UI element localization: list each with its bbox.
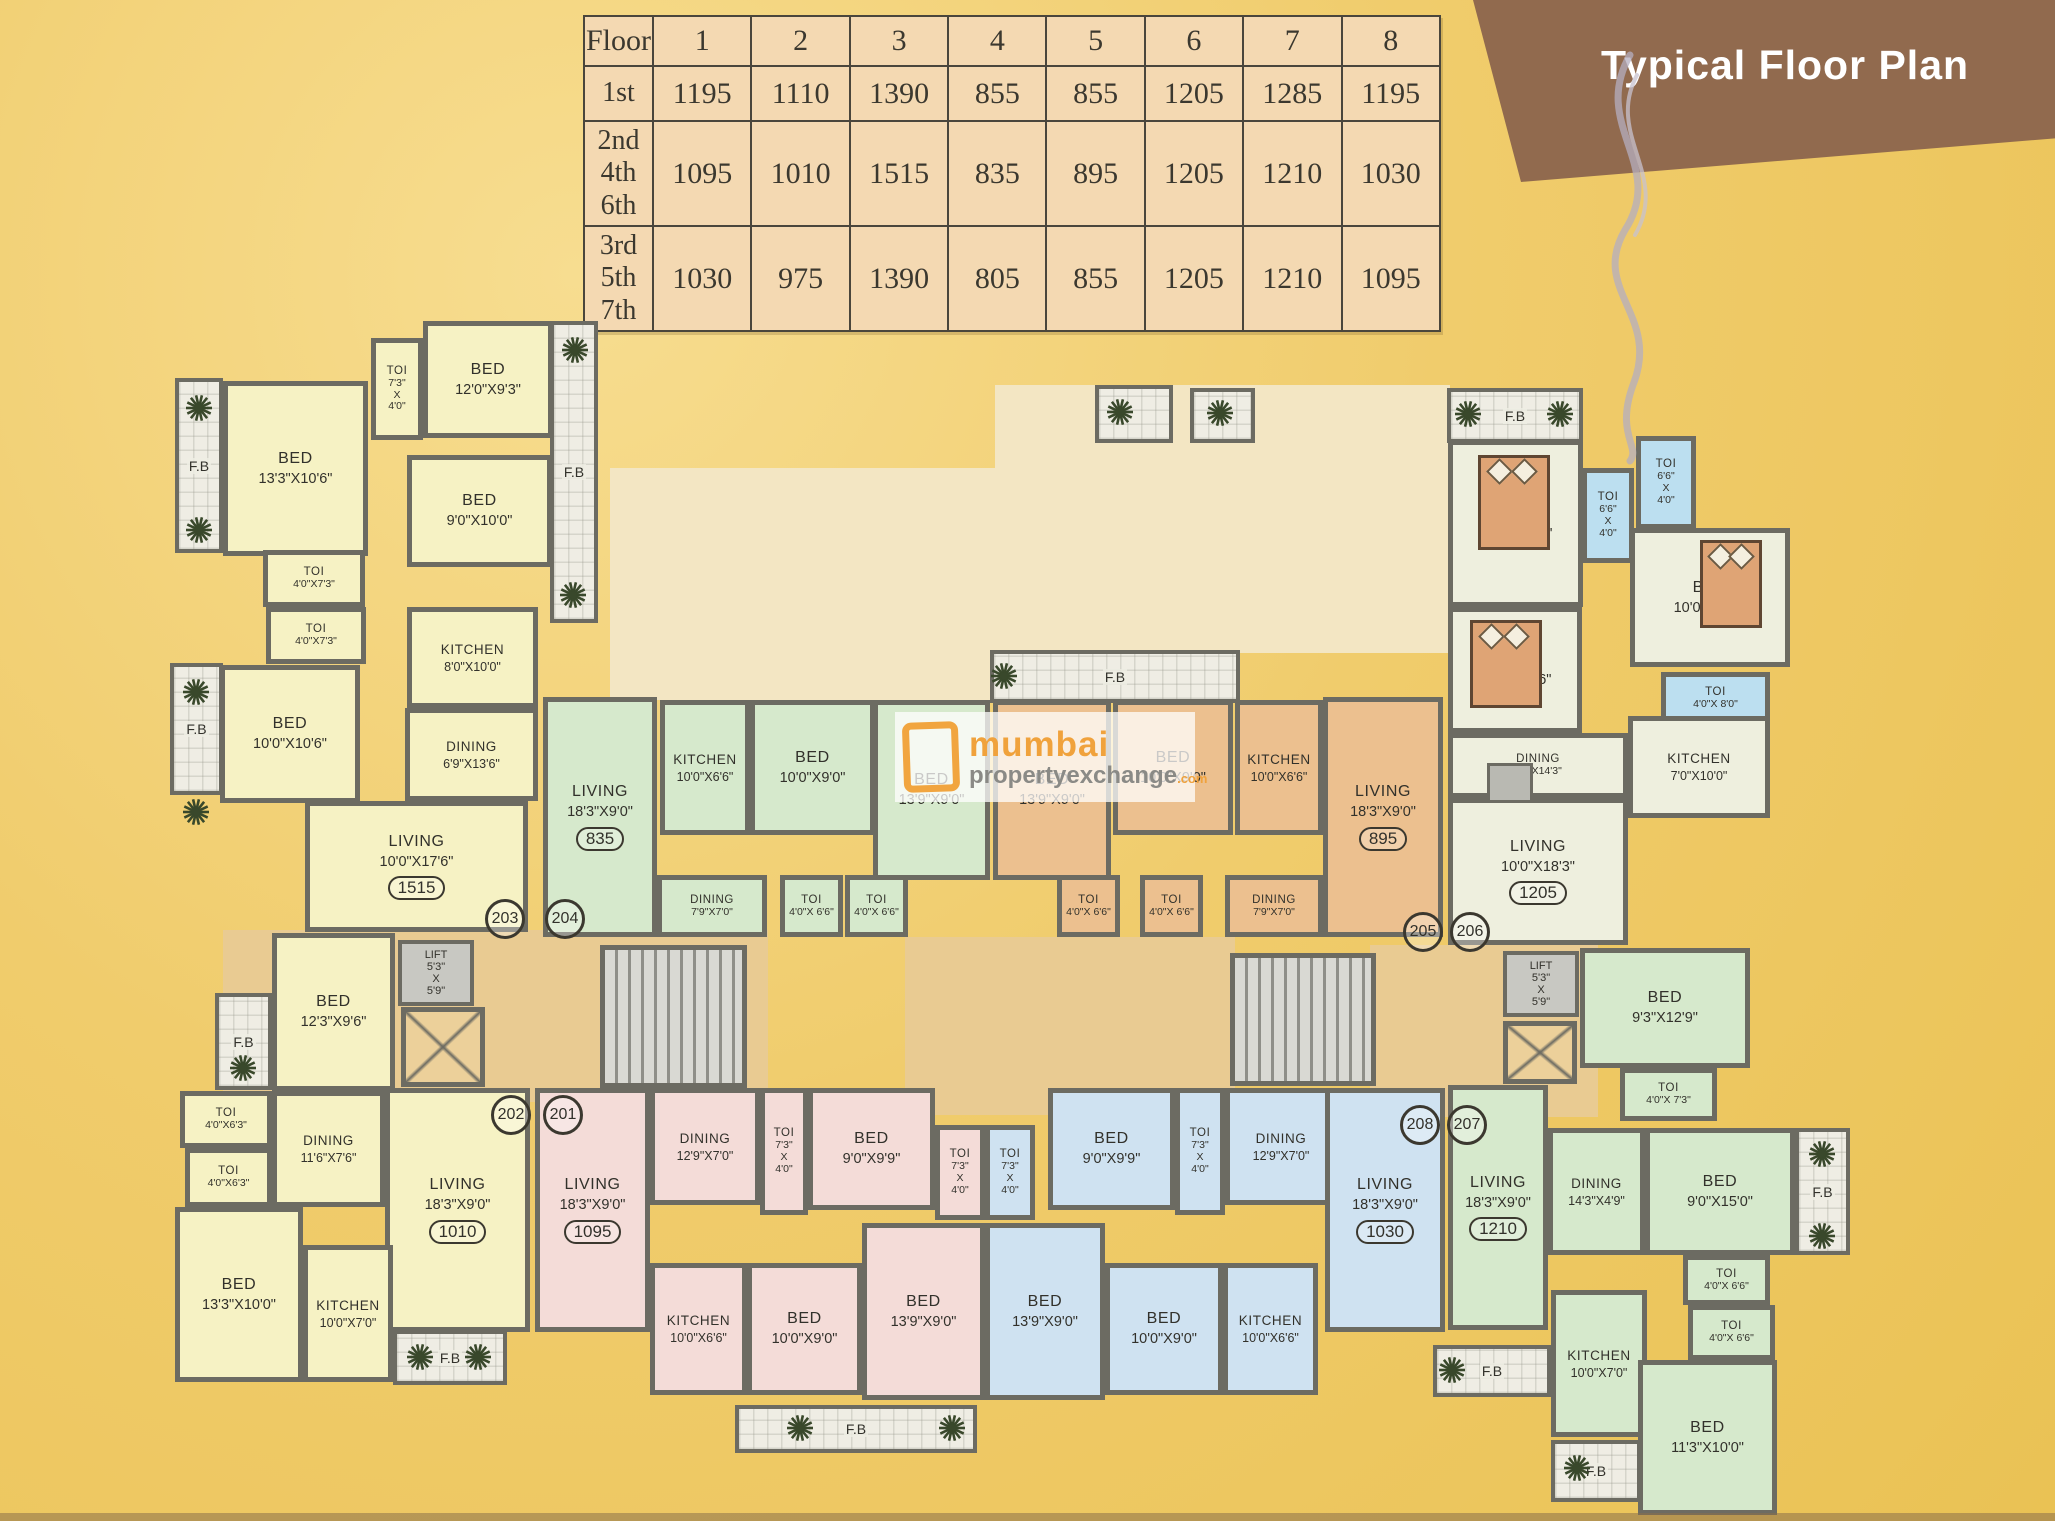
plant-icon <box>1545 399 1575 429</box>
table-row: 1st119511101390855855120512851195 <box>584 66 1440 121</box>
room-name: LIVING <box>388 833 444 851</box>
room-name: DINING <box>690 894 734 906</box>
room-name: KITCHEN <box>673 752 736 767</box>
room-name: BED <box>906 1293 941 1311</box>
lift-shaft: LIFT 5'3" X 5'9" <box>1503 951 1579 1017</box>
room-bed: BED10'0"X9'0" <box>750 700 875 835</box>
floor-label-cell: 2nd 4th 6th <box>584 121 653 226</box>
room-dimensions: 10'0"X6'6" <box>677 770 734 784</box>
room-bed: BED9'0"X10'0" <box>407 455 552 567</box>
plant-icon <box>181 677 211 707</box>
room-name: DINING <box>1571 1176 1622 1191</box>
room-name: LIVING <box>564 1176 620 1194</box>
area-value-cell: 1205 <box>1145 226 1243 331</box>
duct-shaft <box>1503 1021 1577 1084</box>
room-name: BED <box>471 361 506 379</box>
room-kitchen: KITCHEN10'0"X6'6" <box>1235 700 1323 835</box>
plant-icon <box>989 661 1019 691</box>
room-name: BED <box>278 450 313 468</box>
area-value-cell: 1110 <box>751 66 849 121</box>
room-dimensions: 7'9"X7'0" <box>691 907 733 919</box>
room-kitchen: KITCHEN10'0"X6'6" <box>650 1263 747 1395</box>
room-kitchen: KITCHEN10'0"X6'6" <box>660 700 750 835</box>
room-dimensions: 12'9"X7'0" <box>1253 1149 1310 1163</box>
plant-icon <box>1205 398 1235 428</box>
plant-icon <box>1562 1453 1592 1483</box>
room-dimensions: 10'0"X9'0" <box>780 770 846 786</box>
room-dimensions: 10'0"X7'0" <box>1571 1366 1628 1380</box>
balcony-label: F.B <box>844 1421 868 1437</box>
room-name: KITCHEN <box>316 1298 379 1313</box>
room-dimensions: 13'3"X10'6" <box>259 471 333 487</box>
area-badge: 1210 <box>1469 1217 1527 1241</box>
room-name: TOI <box>774 1127 795 1139</box>
flat-number: 203 <box>485 899 525 939</box>
room-dimensions: 6'6" X 4'0" <box>1657 471 1674 506</box>
area-value-cell: 1030 <box>653 226 751 331</box>
room-toi: TOI7'3" X 4'0" <box>371 338 423 440</box>
room-dimensions: 13'9"X9'0" <box>1012 1314 1078 1330</box>
room-name: BED <box>795 749 830 767</box>
balcony-label: F.B <box>1810 1184 1834 1200</box>
plant-icon <box>560 335 590 365</box>
area-value-cell: 835 <box>948 121 1046 226</box>
room-dimensions: 10'0"X17'6" <box>380 854 454 870</box>
room-name: TOI <box>306 623 327 635</box>
flat-number: 201 <box>543 1095 583 1135</box>
room-living: LIVING18'3"X9'0"895 <box>1323 697 1443 937</box>
flat-number: 207 <box>1447 1105 1487 1145</box>
room-bed: BED13'3"X10'6" <box>223 381 368 556</box>
room-dimensions: 9'0"X10'0" <box>447 513 513 529</box>
balcony-label: F.B <box>562 464 586 480</box>
plant-icon <box>558 580 588 610</box>
room-dimensions: 9'3"X12'9" <box>1632 1010 1698 1026</box>
room-dimensions: 18'3"X9'0" <box>1352 1197 1418 1213</box>
room-bed: BED12'0"X9'3" <box>423 321 553 438</box>
room-dimensions: 10'0"X7'0" <box>320 1316 377 1330</box>
watermark-logo-icon <box>902 721 960 793</box>
floor-label-cell: 3rd 5th 7th <box>584 226 653 331</box>
watermark-word2-line: propertyexchange.com <box>969 764 1207 788</box>
area-value-cell: 975 <box>751 226 849 331</box>
room-dimensions: 10'0"X9'0" <box>1131 1331 1197 1347</box>
room-dimensions: 13'9"X9'0" <box>891 1314 957 1330</box>
table-header-row: Floor12345678 <box>584 16 1440 66</box>
room-name: TOI <box>1078 894 1099 906</box>
room-name: KITCHEN <box>1667 751 1730 766</box>
room-dimensions: 7'3" X 4'0" <box>1191 1140 1208 1175</box>
room-dimensions: 10'0"X10'6" <box>253 736 327 752</box>
flat-number: 206 <box>1450 912 1490 952</box>
room-name: BED <box>1028 1293 1063 1311</box>
room-kitchen: KITCHEN10'0"X7'0" <box>1551 1290 1647 1437</box>
room-kitchen: KITCHEN10'0"X7'0" <box>303 1245 393 1382</box>
table-row: 3rd 5th 7th10309751390805855120512101095 <box>584 226 1440 331</box>
smoke-squiggle-icon <box>1575 35 1685 465</box>
area-value-cell: 855 <box>1046 66 1144 121</box>
flat-number: 205 <box>1403 912 1443 952</box>
room-bed: BED9'3"X12'9" <box>1580 948 1750 1068</box>
area-table: Floor123456781st119511101390855855120512… <box>583 15 1441 332</box>
room-dimensions: 18'3"X9'0" <box>1465 1195 1531 1211</box>
room-name: TOI <box>1000 1148 1021 1160</box>
room-name: DINING <box>446 739 497 754</box>
room-name: BED <box>1690 1419 1725 1437</box>
room-name: TOI <box>387 365 408 377</box>
room-name: BED <box>1147 1310 1182 1328</box>
duct-shaft <box>401 1007 485 1087</box>
room-name: DINING <box>1256 1131 1307 1146</box>
lift-shaft: LIFT 5'3" X 5'9" <box>398 940 474 1006</box>
room-dimensions: 18'3"X9'0" <box>567 804 633 820</box>
room-dimensions: 4'0"X 7'3" <box>1646 1095 1691 1107</box>
room-dimensions: 11'3"X10'0" <box>1671 1440 1744 1456</box>
room-bed: BED10'0"X10'6" <box>220 665 360 803</box>
plant-icon <box>1807 1139 1837 1169</box>
room-bed: BED12'3"X9'6" <box>272 933 395 1091</box>
room-toi: TOI4'0"X 6'6" <box>1057 875 1120 937</box>
room-dimensions: 7'3" X 4'0" <box>775 1140 792 1175</box>
area-badge: 1030 <box>1356 1220 1414 1244</box>
room-dimensions: 4'0"X 6'6" <box>1149 907 1194 919</box>
room-name: BED <box>787 1310 822 1328</box>
watermark-text: mumbai propertyexchange.com <box>969 727 1207 788</box>
balcony: F.B <box>990 650 1240 703</box>
room-dimensions: 7'3" X 4'0" <box>1001 1161 1018 1196</box>
room-dining: DINING12'9"X7'0" <box>650 1088 760 1205</box>
table-header-cell: 8 <box>1342 16 1441 66</box>
room-dimensions: 4'0"X 6'6" <box>1709 1333 1754 1345</box>
plant-icon <box>785 1413 815 1443</box>
staircase <box>1230 953 1376 1086</box>
table-header-cell: Floor <box>584 16 653 66</box>
room-name: BED <box>854 1130 889 1148</box>
room-dimensions: 12'0"X9'3" <box>455 382 521 398</box>
room-toi: TOI4'0"X 7'3" <box>1620 1068 1717 1121</box>
room-dimensions: 4'0"X 6'6" <box>789 907 834 919</box>
bed-furniture-icon <box>1700 540 1762 628</box>
room-name: BED <box>1094 1130 1129 1148</box>
watermark: mumbai propertyexchange.com <box>895 712 1195 802</box>
area-badge: 1010 <box>429 1220 487 1244</box>
room-name: TOI <box>801 894 822 906</box>
flat-number: 202 <box>491 1095 531 1135</box>
table-header-cell: 1 <box>653 16 751 66</box>
room-toi: TOI7'3" X 4'0" <box>760 1088 808 1215</box>
area-value-cell: 1205 <box>1145 66 1243 121</box>
room-dimensions: 9'0"X9'9" <box>843 1151 901 1167</box>
room-dimensions: 12'9"X7'0" <box>677 1149 734 1163</box>
room-dining: DINING14'3"X4'9" <box>1548 1128 1645 1255</box>
room-name: BED <box>1703 1173 1738 1191</box>
area-value-cell: 1205 <box>1145 121 1243 226</box>
room-dimensions: 18'3"X9'0" <box>1350 804 1416 820</box>
room-dimensions: 7'0"X10'0" <box>1671 769 1728 783</box>
balcony-label: F.B <box>184 721 208 737</box>
room-toi: TOI4'0"X6'3" <box>185 1148 272 1207</box>
room-name: LIVING <box>1470 1174 1526 1192</box>
table-header-cell: 5 <box>1046 16 1144 66</box>
room-dimensions: 10'0"X18'3" <box>1501 859 1575 875</box>
room-toi: TOI6'6" X 4'0" <box>1582 468 1634 563</box>
room-dining: DINING6'9"X13'6" <box>405 708 538 801</box>
balcony-label: F.B <box>1503 408 1527 424</box>
area-badge: 835 <box>576 827 624 851</box>
title-banner: Typical Floor Plan <box>1455 0 2055 182</box>
floor-label-cell: 1st <box>584 66 653 121</box>
room-name: LIVING <box>1510 838 1566 856</box>
plant-icon <box>228 1053 258 1083</box>
room-dimensions: 18'3"X9'0" <box>425 1197 491 1213</box>
flat-number: 204 <box>545 899 585 939</box>
room-name: TOI <box>1190 1127 1211 1139</box>
room-name: TOI <box>218 1165 239 1177</box>
room-name: TOI <box>304 566 325 578</box>
room-dimensions: 6'6" X 4'0" <box>1599 504 1616 539</box>
room-dining: DINING5'0"X14'3" <box>1448 733 1628 798</box>
room-dimensions: 10'0"X9'0" <box>772 1331 838 1347</box>
plant-icon <box>184 393 214 423</box>
area-value-cell: 1095 <box>653 121 751 226</box>
table-row: 2nd 4th 6th10951010151583589512051210103… <box>584 121 1440 226</box>
area-badge: 1515 <box>388 876 446 900</box>
room-dimensions: 4'0"X7'3" <box>293 579 335 591</box>
bed-furniture-icon <box>1478 455 1550 550</box>
floor-plan-page: Floor123456781st119511101390855855120512… <box>0 0 2055 1521</box>
room-name: TOI <box>1705 686 1726 698</box>
room-name: LIVING <box>572 783 628 801</box>
room-name: LIVING <box>429 1176 485 1194</box>
table-header-cell: 7 <box>1243 16 1341 66</box>
room-bed: BED10'0"X9'0" <box>1105 1263 1223 1395</box>
area-value-cell: 1195 <box>1342 66 1441 121</box>
plant-icon <box>1453 399 1483 429</box>
room-dimensions: 12'3"X9'6" <box>301 1014 367 1030</box>
area-value-cell: 855 <box>948 66 1046 121</box>
area-value-cell: 1195 <box>653 66 751 121</box>
room-name: TOI <box>950 1148 971 1160</box>
area-value-cell: 1390 <box>850 226 948 331</box>
room-name: TOI <box>1658 1082 1679 1094</box>
floor-area-table: Floor123456781st119511101390855855120512… <box>583 15 1441 332</box>
staircase <box>600 945 747 1088</box>
room-name: TOI <box>866 894 887 906</box>
area-badge: 1095 <box>564 1220 622 1244</box>
room-dimensions: 7'9"X7'0" <box>1253 907 1295 919</box>
balcony-label: F.B <box>231 1034 255 1050</box>
table-header-cell: 4 <box>948 16 1046 66</box>
room-dimensions: 7'3" X 4'0" <box>388 378 405 413</box>
room-name: KITCHEN <box>1567 1348 1630 1363</box>
room-name: BED <box>222 1276 257 1294</box>
room-kitchen: KITCHEN8'0"X10'0" <box>407 607 538 708</box>
balcony-label: F.B <box>1103 669 1127 685</box>
room-name: DINING <box>680 1131 731 1146</box>
room-name: TOI <box>216 1107 237 1119</box>
room-bed: BED9'0"X9'9" <box>1048 1088 1175 1210</box>
room-dining: DINING7'9"X7'0" <box>1225 875 1323 937</box>
room-toi: TOI4'0"X 6'6" <box>1688 1305 1775 1360</box>
area-value-cell: 1095 <box>1342 226 1441 331</box>
room-bed: BED13'9"X9'0" <box>862 1223 985 1400</box>
room-bed: BED10'0"X9'0" <box>747 1263 862 1395</box>
room-dimensions: 13'3"X10'0" <box>202 1297 276 1313</box>
room-dimensions: 4'0"X 8'0" <box>1693 699 1738 711</box>
room-bed: BED9'0"X15'0" <box>1645 1128 1795 1255</box>
room-name: TOI <box>1161 894 1182 906</box>
area-value-cell: 1390 <box>850 66 948 121</box>
room-toi: TOI4'0"X 6'6" <box>780 875 843 937</box>
plant-icon <box>405 1342 435 1372</box>
area-value-cell: 1285 <box>1243 66 1341 121</box>
room-kitchen: KITCHEN7'0"X10'0" <box>1628 716 1770 818</box>
balcony-label: F.B <box>187 458 211 474</box>
room-dimensions: 9'0"X9'9" <box>1083 1151 1141 1167</box>
room-name: BED <box>1648 989 1683 1007</box>
area-value-cell: 1210 <box>1243 121 1341 226</box>
room-name: BED <box>462 492 497 510</box>
room-toi: TOI7'3" X 4'0" <box>1175 1088 1225 1215</box>
room-name: BED <box>316 993 351 1011</box>
room-name: DINING <box>303 1133 354 1148</box>
area-value-cell: 855 <box>1046 226 1144 331</box>
room-name: KITCHEN <box>1239 1313 1302 1328</box>
plant-icon <box>1437 1355 1467 1385</box>
room-dining: DINING12'9"X7'0" <box>1225 1088 1337 1205</box>
room-dimensions: 10'0"X6'6" <box>1242 1331 1299 1345</box>
room-dimensions: 6'9"X13'6" <box>443 757 500 771</box>
room-name: TOI <box>1598 491 1619 503</box>
area-value-cell: 1515 <box>850 121 948 226</box>
table-header-cell: 6 <box>1145 16 1243 66</box>
plant-icon <box>181 797 211 827</box>
room-dimensions: 4'0"X6'3" <box>205 1120 247 1132</box>
room-bed: BED13'3"X10'0" <box>175 1207 303 1382</box>
room-dimensions: 4'0"X 6'6" <box>1704 1281 1749 1293</box>
area-badge: 1205 <box>1509 881 1567 905</box>
room-toi: TOI4'0"X7'3" <box>266 607 366 664</box>
room-dimensions: 11'6"X7'6" <box>301 1151 357 1165</box>
bed-furniture-icon <box>1470 620 1542 708</box>
room-name: KITCHEN <box>441 642 504 657</box>
room-toi: TOI4'0"X7'3" <box>263 550 365 607</box>
room-dimensions: 18'3"X9'0" <box>560 1197 626 1213</box>
room-name: KITCHEN <box>667 1313 730 1328</box>
room-name: BED <box>273 715 308 733</box>
room-dimensions: 7'3" X 4'0" <box>951 1161 968 1196</box>
room-dimensions: 14'3"X4'9" <box>1568 1194 1625 1208</box>
watermark-word3: .com <box>1177 771 1207 786</box>
plant-icon <box>937 1413 967 1443</box>
area-value-cell: 895 <box>1046 121 1144 226</box>
watermark-word2: propertyexchange <box>969 762 1177 789</box>
room-name: LIVING <box>1357 1176 1413 1194</box>
table-header-cell: 2 <box>751 16 849 66</box>
room-name: TOI <box>1721 1320 1742 1332</box>
balcony: F.B <box>550 321 598 623</box>
room-toi: TOI4'0"X 6'6" <box>1140 875 1203 937</box>
room-name: LIVING <box>1355 783 1411 801</box>
room-toi: TOI4'0"X 6'6" <box>845 875 908 937</box>
room-name: TOI <box>1716 1268 1737 1280</box>
lobby-area <box>610 468 995 700</box>
room-toi: TOI7'3" X 4'0" <box>985 1125 1035 1220</box>
balcony-label: F.B <box>438 1350 462 1366</box>
room-kitchen: KITCHEN10'0"X6'6" <box>1223 1263 1318 1395</box>
room-toi: TOI4'0"X6'3" <box>180 1091 272 1148</box>
plant-icon <box>1807 1221 1837 1251</box>
room-bed: BED11'3"X10'0" <box>1638 1360 1777 1515</box>
room-dimensions: 4'0"X 6'6" <box>854 907 899 919</box>
plant-icon <box>463 1342 493 1372</box>
room-dimensions: 9'0"X15'0" <box>1687 1194 1753 1210</box>
room-toi: TOI4'0"X 6'6" <box>1683 1255 1770 1305</box>
area-value-cell: 1210 <box>1243 226 1341 331</box>
room-name: KITCHEN <box>1247 752 1310 767</box>
room-dimensions: 4'0"X 6'6" <box>1066 907 1111 919</box>
room-dimensions: 10'0"X6'6" <box>670 1331 727 1345</box>
area-badge: 895 <box>1359 827 1407 851</box>
plant-icon <box>1105 397 1135 427</box>
watermark-word1: mumbai <box>969 727 1207 762</box>
room-dimensions: 8'0"X10'0" <box>444 660 501 674</box>
room-dimensions: 4'0"X7'3" <box>295 636 337 648</box>
balcony-label: F.B <box>1480 1363 1504 1379</box>
room-name: DINING <box>1252 894 1296 906</box>
room-dining: DINING7'9"X7'0" <box>657 875 767 937</box>
table-header-cell: 3 <box>850 16 948 66</box>
dining-table-icon <box>1487 763 1533 803</box>
room-bed: BED13'9"X9'0" <box>985 1223 1105 1400</box>
room-dimensions: 10'0"X6'6" <box>1251 770 1308 784</box>
room-toi: TOI7'3" X 4'0" <box>935 1125 985 1220</box>
flat-number: 208 <box>1400 1105 1440 1145</box>
plant-icon <box>184 515 214 545</box>
area-value-cell: 1010 <box>751 121 849 226</box>
area-value-cell: 1030 <box>1342 121 1441 226</box>
room-dining: DINING11'6"X7'6" <box>272 1091 385 1207</box>
room-bed: BED9'0"X9'9" <box>808 1088 935 1210</box>
room-dimensions: 4'0"X6'3" <box>208 1178 250 1190</box>
area-value-cell: 805 <box>948 226 1046 331</box>
